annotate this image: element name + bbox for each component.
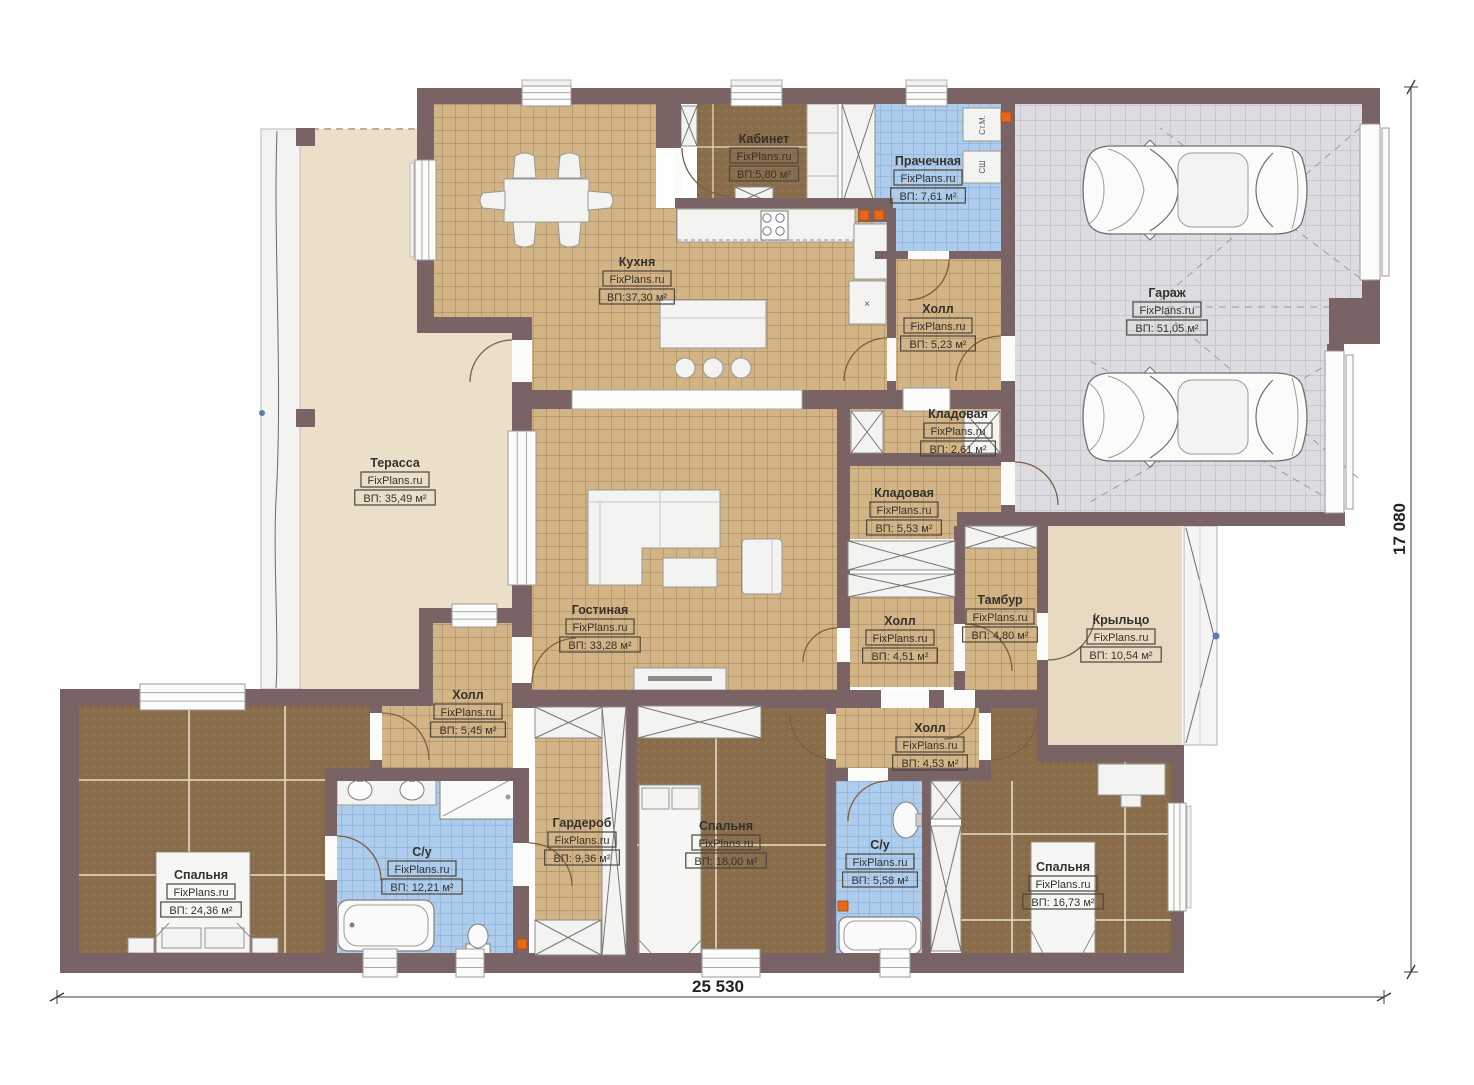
- svg-text:FixPlans.ru: FixPlans.ru: [698, 838, 753, 850]
- svg-text:ВП: 9,36 м²: ВП: 9,36 м²: [553, 853, 610, 865]
- svg-text:ВП:5,80 м²: ВП:5,80 м²: [737, 169, 791, 181]
- svg-text:FixPlans.ru: FixPlans.ru: [902, 740, 957, 752]
- svg-text:Холл: Холл: [452, 688, 483, 702]
- svg-text:ВП: 2,61 м²: ВП: 2,61 м²: [929, 444, 986, 456]
- svg-text:Гардероб: Гардероб: [552, 816, 611, 830]
- svg-text:ВП: 4,53 м²: ВП: 4,53 м²: [901, 758, 958, 770]
- svg-text:Холл: Холл: [884, 614, 915, 628]
- svg-text:FixPlans.ru: FixPlans.ru: [1093, 632, 1148, 644]
- svg-text:Спальня: Спальня: [1036, 860, 1090, 874]
- svg-text:ВП:37,30 м²: ВП:37,30 м²: [607, 292, 667, 304]
- svg-text:Спальня: Спальня: [174, 868, 228, 882]
- svg-text:Терасса: Терасса: [370, 456, 421, 470]
- svg-text:Гостиная: Гостиная: [572, 603, 629, 617]
- svg-text:FixPlans.ru: FixPlans.ru: [930, 426, 985, 438]
- svg-text:FixPlans.ru: FixPlans.ru: [1139, 305, 1194, 317]
- svg-text:ВП: 16,73 м²: ВП: 16,73 м²: [1031, 897, 1095, 909]
- svg-text:Тамбур: Тамбур: [977, 593, 1023, 607]
- svg-text:С/у: С/у: [870, 838, 890, 852]
- svg-text:Ст.М.: Ст.М.: [978, 115, 987, 135]
- svg-text:Кладовая: Кладовая: [928, 407, 988, 421]
- svg-text:FixPlans.ru: FixPlans.ru: [394, 864, 449, 876]
- svg-text:ВП: 5,53 м²: ВП: 5,53 м²: [875, 523, 932, 535]
- svg-text:FixPlans.ru: FixPlans.ru: [554, 835, 609, 847]
- svg-text:×: ×: [864, 299, 870, 310]
- svg-text:FixPlans.ru: FixPlans.ru: [173, 887, 228, 899]
- svg-text:FixPlans.ru: FixPlans.ru: [440, 707, 495, 719]
- svg-text:FixPlans.ru: FixPlans.ru: [609, 274, 664, 286]
- svg-text:Прачечная: Прачечная: [895, 154, 961, 168]
- svg-text:ВП: 7,61 м²: ВП: 7,61 м²: [899, 191, 956, 203]
- svg-text:FixPlans.ru: FixPlans.ru: [972, 612, 1027, 624]
- svg-text:ВП: 4,51 м²: ВП: 4,51 м²: [871, 651, 928, 663]
- svg-text:FixPlans.ru: FixPlans.ru: [1035, 879, 1090, 891]
- svg-text:ВП: 10,54 м²: ВП: 10,54 м²: [1089, 650, 1153, 662]
- svg-text:Гараж: Гараж: [1148, 286, 1185, 300]
- svg-text:Кладовая: Кладовая: [874, 486, 934, 500]
- svg-text:25 530: 25 530: [692, 977, 744, 996]
- svg-text:ВП: 35,49 м²: ВП: 35,49 м²: [363, 493, 427, 505]
- svg-text:ВП: 24,36 м²: ВП: 24,36 м²: [169, 905, 233, 917]
- svg-text:ВП: 4,80 м²: ВП: 4,80 м²: [971, 630, 1028, 642]
- svg-text:FixPlans.ru: FixPlans.ru: [900, 173, 955, 185]
- svg-text:СШ: СШ: [978, 160, 987, 173]
- svg-text:С/у: С/у: [412, 845, 432, 859]
- svg-text:FixPlans.ru: FixPlans.ru: [852, 857, 907, 869]
- svg-text:Кабинет: Кабинет: [739, 132, 790, 146]
- svg-text:ВП: 18,00 м²: ВП: 18,00 м²: [694, 856, 758, 868]
- svg-text:ВП: 12,21 м²: ВП: 12,21 м²: [390, 882, 454, 894]
- svg-text:Холл: Холл: [922, 302, 953, 316]
- svg-text:ВП: 5,45 м²: ВП: 5,45 м²: [439, 725, 496, 737]
- svg-text:Спальня: Спальня: [699, 819, 753, 833]
- svg-text:ВП: 5,58 м²: ВП: 5,58 м²: [851, 875, 908, 887]
- svg-text:FixPlans.ru: FixPlans.ru: [367, 475, 422, 487]
- svg-text:17 080: 17 080: [1390, 503, 1409, 555]
- svg-text:Холл: Холл: [914, 721, 945, 735]
- svg-text:ВП: 51,05 м²: ВП: 51,05 м²: [1135, 323, 1199, 335]
- svg-text:Кухня: Кухня: [619, 255, 656, 269]
- svg-text:FixPlans.ru: FixPlans.ru: [872, 633, 927, 645]
- svg-text:ВП: 33,28 м²: ВП: 33,28 м²: [568, 640, 632, 652]
- svg-text:FixPlans.ru: FixPlans.ru: [876, 505, 931, 517]
- svg-text:ВП: 5,23 м²: ВП: 5,23 м²: [909, 339, 966, 351]
- svg-text:FixPlans.ru: FixPlans.ru: [572, 622, 627, 634]
- svg-text:FixPlans.ru: FixPlans.ru: [910, 321, 965, 333]
- svg-text:FixPlans.ru: FixPlans.ru: [736, 151, 791, 163]
- svg-text:Крыльцо: Крыльцо: [1093, 613, 1150, 627]
